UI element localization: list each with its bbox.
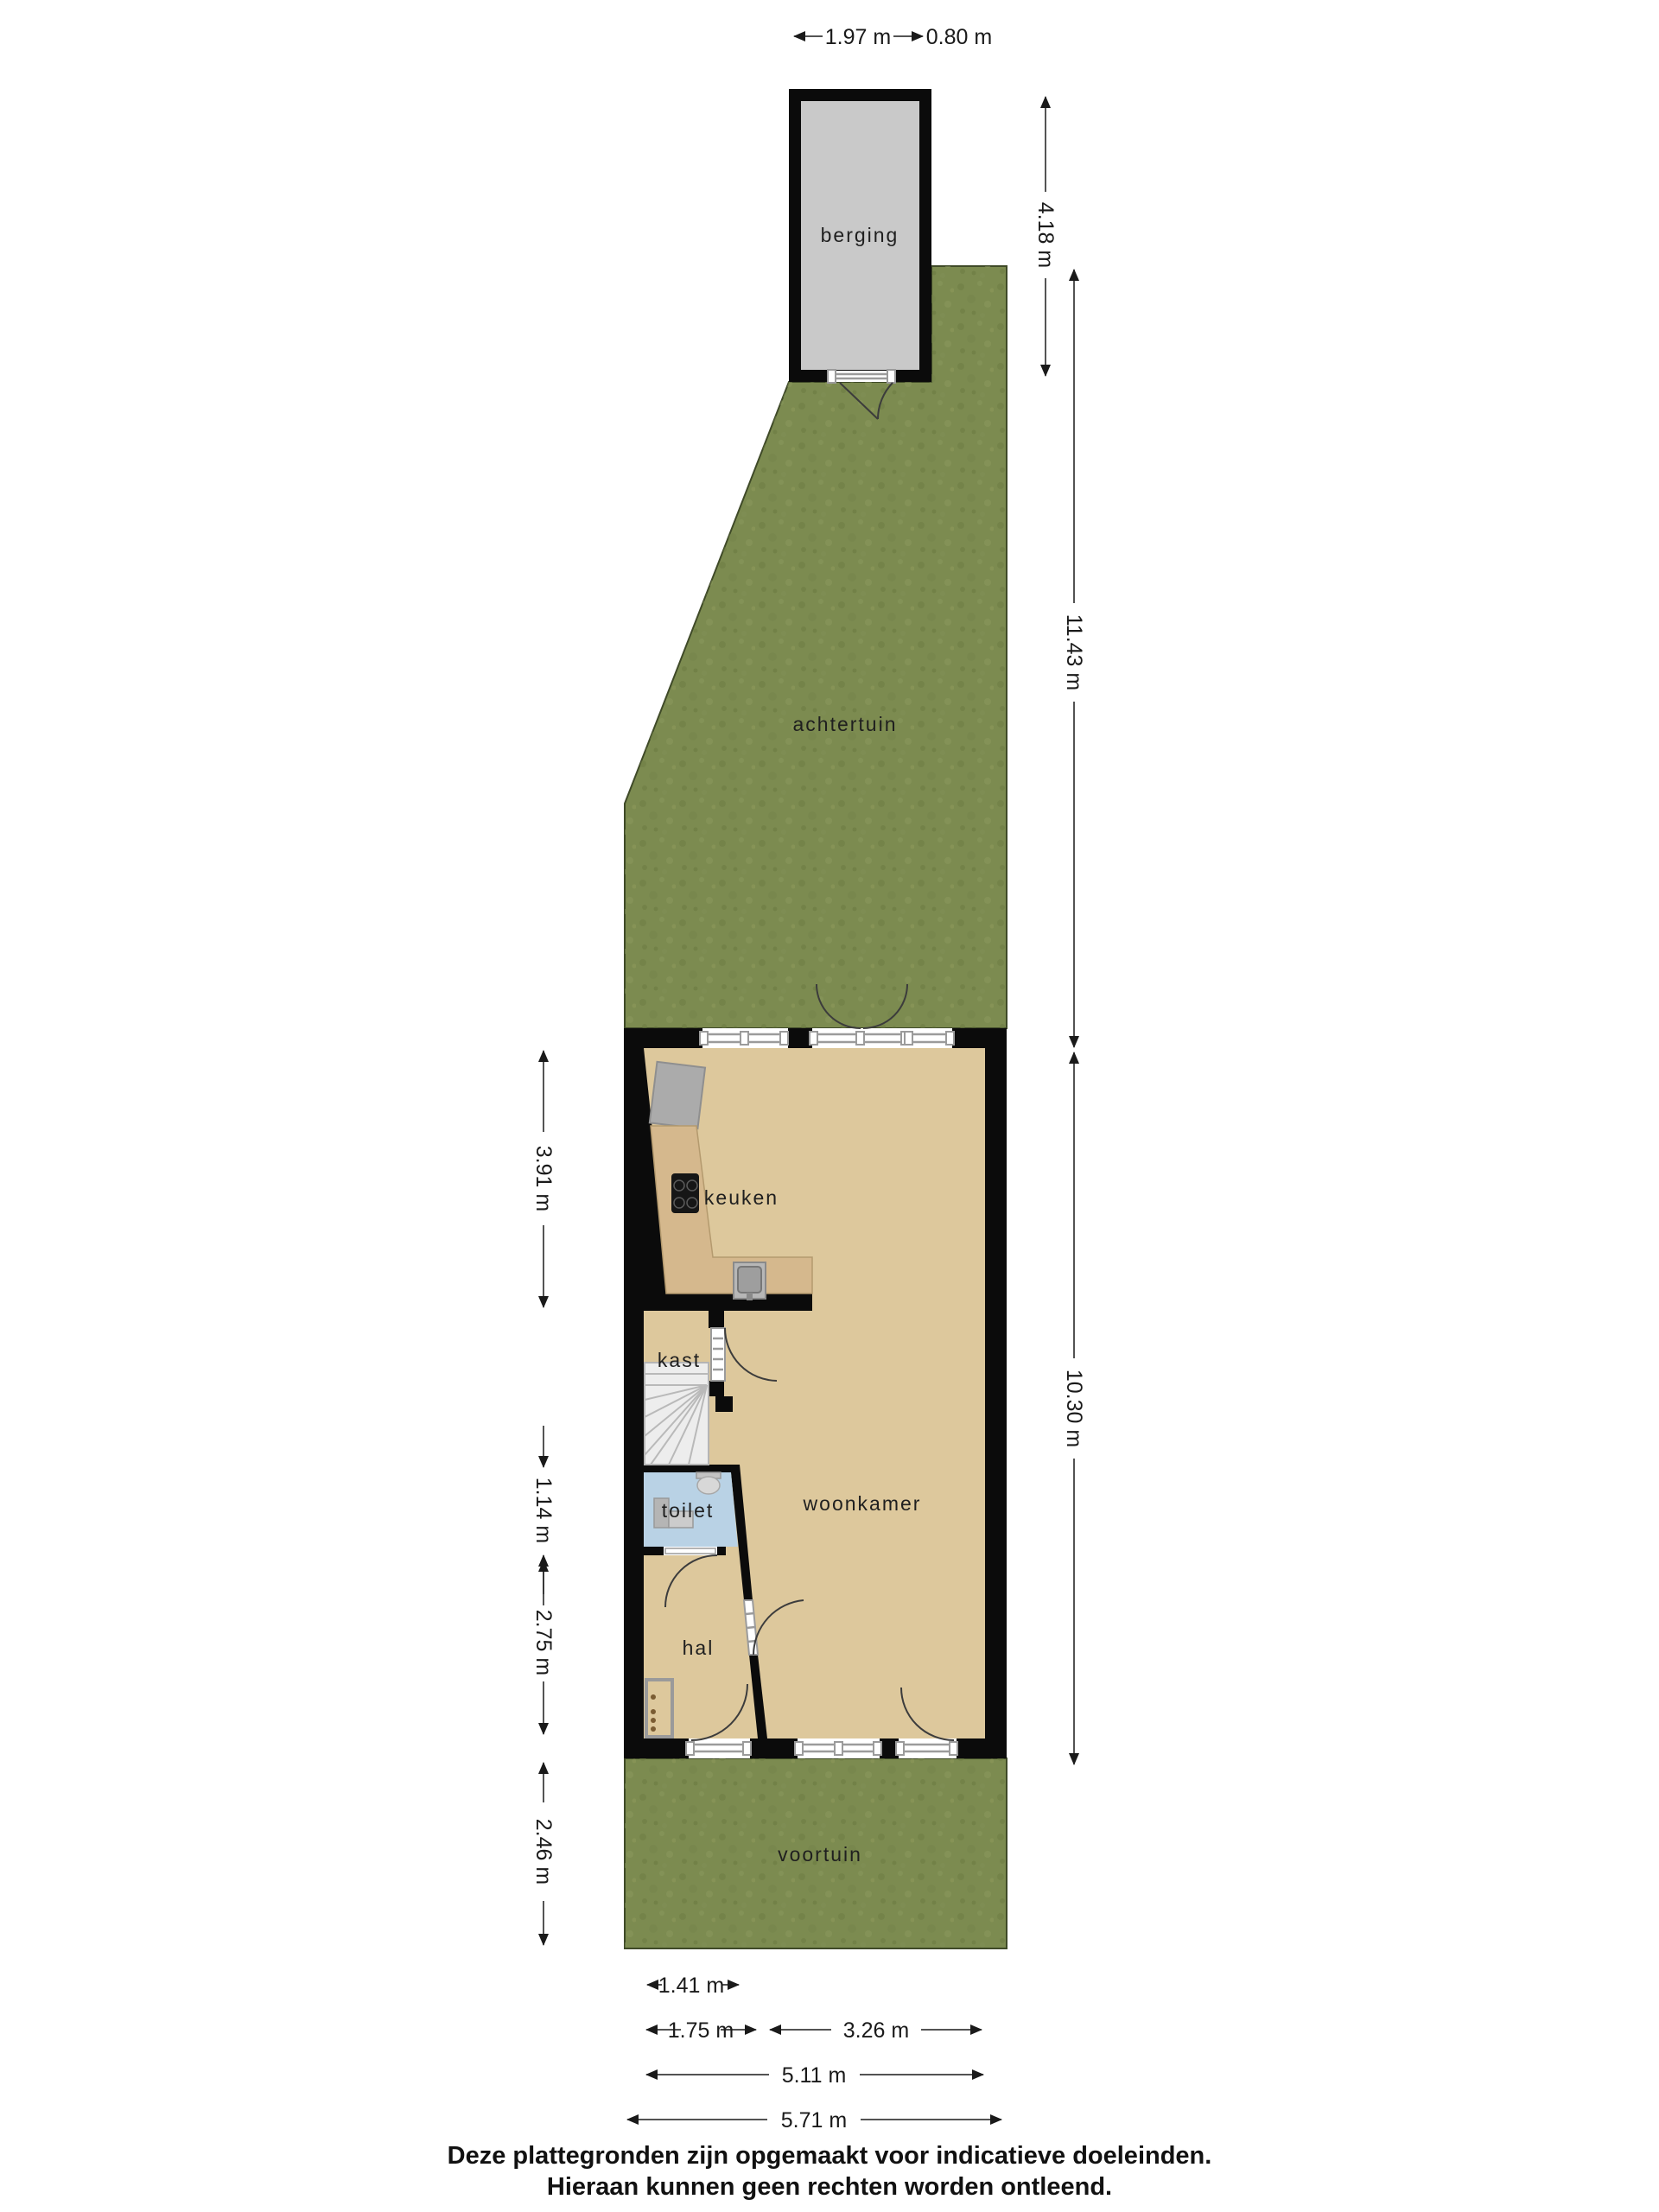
dim-achtertuin-depth: 11.43 m	[1062, 614, 1086, 690]
room-label-achtertuin: achtertuin	[792, 713, 897, 735]
room-label-voortuin: voortuin	[778, 1843, 862, 1866]
dim-front-window-section: 3.26 m	[843, 2018, 909, 2043]
dim-berging-side-strip: 0.80 m	[926, 25, 992, 49]
dim-berging-depth: 4.18 m	[1033, 202, 1058, 268]
room-label-toilet: toilet	[662, 1499, 715, 1522]
room-label-keuken: keuken	[704, 1186, 779, 1209]
room-label-kast: kast	[658, 1349, 701, 1371]
dim-front-door-section: 1.75 m	[668, 2018, 734, 2043]
fridge	[650, 1062, 705, 1128]
berging-structure	[789, 89, 931, 419]
dim-berging-width: 1.97 m	[825, 25, 891, 49]
sink-tap	[747, 1293, 753, 1300]
footer-disclaimer-line2: Hieraan kunnen geen rechten worden ontle…	[547, 2173, 1112, 2201]
front-window-door-opening	[899, 1738, 957, 1758]
floorplan-canvas: 1.97 m 0.80 m 4.18 m 11.43 m 10.30 m 3.9…	[0, 0, 1659, 2212]
dim-voortuin-depth: 2.46 m	[531, 1819, 556, 1885]
dim-house-inner-width: 5.11 m	[782, 2063, 847, 2088]
dim-house-outer-width: 5.71 m	[781, 2108, 847, 2133]
dim-house-depth: 10.30 m	[1062, 1370, 1086, 1447]
room-label-woonkamer: woonkamer	[803, 1492, 922, 1515]
dim-toilet-depth: 1.14 m	[531, 1478, 556, 1543]
front-door-opening	[689, 1738, 750, 1758]
toilet-bowl	[697, 1477, 720, 1494]
dim-hal-depth: 2.75 m	[531, 1610, 556, 1675]
room-label-hal: hal	[683, 1637, 715, 1659]
berging-door-opening	[831, 371, 893, 382]
dim-keuken-depth: 3.91 m	[531, 1146, 556, 1211]
footer-disclaimer-line1: Deze plattegronden zijn opgemaakt voor i…	[448, 2142, 1212, 2170]
dim-hal-width: 1.41 m	[658, 1974, 724, 1998]
stairs	[645, 1363, 709, 1465]
room-label-berging: berging	[821, 224, 899, 246]
floorplan-page: { "document": { "footer_line1": "Deze pl…	[0, 0, 1659, 2212]
